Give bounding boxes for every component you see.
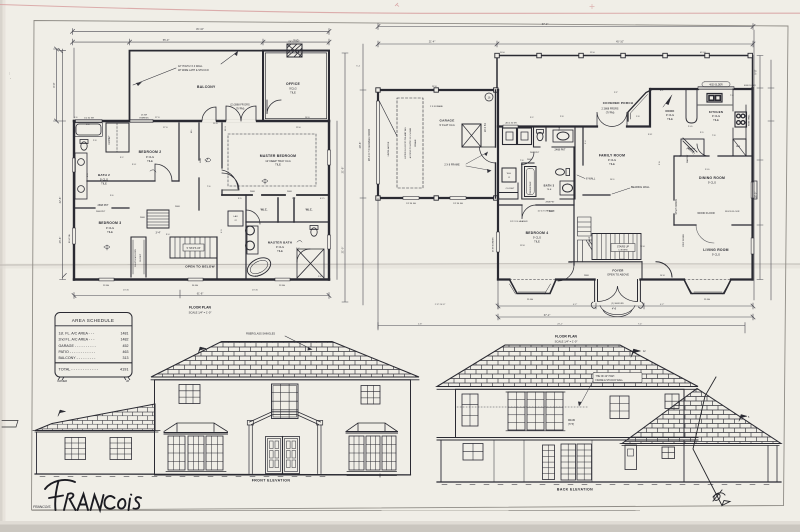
svg-text:LIVING ROOM: LIVING ROOM (703, 248, 729, 252)
svg-text:23 SH: 23 SH (103, 285, 109, 287)
svg-text:3'-0°: 3'-0° (132, 164, 136, 166)
svg-text:6' WALL: 6' WALL (586, 178, 596, 181)
svg-text:45'-10": 45'-10" (196, 27, 204, 31)
svg-text:25 SH: 25 SH (704, 299, 711, 301)
svg-text:(TYPM): (TYPM) (236, 108, 245, 111)
svg-text:8'-1": 8'-1" (660, 90, 664, 92)
svg-text:COVERED PORCH: COVERED PORCH (603, 101, 634, 105)
svg-text:2468 PKT: 2468 PKT (554, 149, 566, 152)
svg-text:SCALE 1/4" = 1'-0": SCALE 1/4" = 1'-0" (555, 339, 578, 343)
svg-text:PANTRY: PANTRY (686, 154, 689, 163)
svg-text:25 SH: 25 SH (527, 299, 534, 301)
svg-text:55'-0": 55'-0" (163, 38, 170, 42)
svg-text:21'-8": 21'-8" (341, 167, 345, 174)
svg-text:2'-8": 2'-8" (418, 323, 423, 325)
svg-text:7'-4": 7'-4" (638, 323, 643, 325)
svg-text:KITCHEN: KITCHEN (709, 110, 723, 114)
svg-text:BEDROOM 3: BEDROOM 3 (99, 221, 122, 225)
svg-text:TILE: TILE (559, 126, 561, 131)
svg-text:22 X 54: 22 X 54 (484, 123, 487, 132)
svg-text:2 X 8 FRAME: 2 X 8 FRAME (444, 164, 460, 167)
svg-text:452: 452 (123, 344, 129, 348)
svg-text:45'-10": 45'-10" (616, 40, 624, 44)
svg-text:(TYP): (TYP) (568, 424, 574, 426)
svg-text:8'-8": 8'-8" (52, 82, 56, 87)
svg-text:1/2 34 SH: 1/2 34 SH (453, 203, 463, 205)
svg-text:1/2 32 SH: 1/2 32 SH (540, 126, 550, 128)
svg-text:FRONT ELEVATION: FRONT ELEVATION (252, 479, 291, 483)
svg-text:WOOD FLOOR: WOOD FLOOR (725, 211, 740, 213)
svg-text:TILE: TILE (667, 117, 673, 121)
svg-text:23'-9n: 23'-9n (123, 290, 130, 292)
svg-text:TILE: TILE (534, 239, 540, 243)
svg-text:FRAME & STUCCO WALL: FRAME & STUCCO WALL (596, 379, 624, 382)
svg-text:1482: 1482 (121, 338, 129, 342)
svg-text:TILE: TILE (609, 162, 615, 166)
svg-text:9' CLG: 9' CLG (533, 236, 541, 240)
svg-text:12' DEEP TRAY CLG: 12' DEEP TRAY CLG (265, 159, 290, 163)
svg-text:25 SH EGRESS: 25 SH EGRESS (493, 237, 495, 252)
svg-text:MASTER BATH: MASTER BATH (268, 241, 292, 245)
svg-text:BACK ELEVATION: BACK ELEVATION (557, 488, 593, 492)
svg-text:4030 SLDER: 4030 SLDER (709, 85, 723, 87)
svg-text:4'-6: 4'-6 (612, 307, 617, 311)
svg-text:186 BY-PASS DRS: 186 BY-PASS DRS (134, 249, 137, 267)
svg-text:4030 S OER: 4030 S OER (744, 85, 756, 87)
svg-text:LINTEL ABOVE: LINTEL ABOVE (387, 141, 390, 156)
svg-text:1st. FL. A/C AREA - - -: 1st. FL. A/C AREA - - - (59, 331, 96, 335)
svg-text:FOYER: FOYER (612, 269, 624, 273)
svg-text:(2) 3068 DRS: (2) 3068 DRS (611, 303, 624, 305)
svg-text:M 1/2 SH: M 1/2 SH (69, 233, 71, 243)
svg-text:2 2868 FRDRS: 2 2868 FRDRS (602, 108, 619, 111)
svg-text:2'-8" 20'-8": 2'-8" 20'-8" (435, 304, 446, 306)
svg-text:EGRESS: EGRESS (139, 117, 149, 119)
svg-text:STEP DOWN: STEP DOWN (683, 234, 685, 247)
svg-text:A 1/2 32 SH: A 1/2 32 SH (505, 122, 517, 125)
svg-text:WOOD FLOOR: WOOD FLOOR (697, 212, 715, 215)
svg-text:42'-8": 42'-8" (58, 197, 62, 204)
svg-text:OPEN TO ABOVE: OPEN TO ABOVE (607, 273, 629, 277)
svg-text:TOTAL - - - - - - - - - - - -: TOTAL - - - - - - - - - - - - (59, 367, 99, 371)
svg-text:REF: REF (736, 146, 741, 148)
svg-text:CLOSET: CLOSET (506, 188, 515, 190)
svg-text:TUB/SHOWER: TUB/SHOWER (530, 181, 532, 194)
svg-text:W.I.C.: W.I.C. (306, 209, 313, 212)
svg-text:BALCONY - - - - - - - - -: BALCONY - - - - - - - - - (59, 356, 97, 360)
svg-text:BALCONY: BALCONY (197, 85, 216, 89)
svg-text:28'-8": 28'-8" (358, 142, 362, 149)
svg-text:TILE: TILE (713, 118, 719, 122)
svg-text:W.H.: W.H. (507, 173, 512, 175)
svg-text:463: 463 (123, 350, 129, 354)
svg-text:CLOSET: CLOSET (109, 135, 111, 145)
svg-text:GARAGE: GARAGE (439, 119, 454, 123)
svg-text:9' CLG: 9' CLG (712, 253, 720, 257)
svg-text:21'-0": 21'-0" (341, 247, 345, 254)
svg-text:9' CLG: 9' CLG (666, 113, 674, 117)
svg-text:TILE: TILE (107, 230, 113, 234)
svg-text:FLOOR PLAN: FLOOR PLAN (555, 335, 578, 339)
svg-text:61'-8": 61'-8" (197, 291, 204, 295)
svg-text:9'CLG: 9'CLG (289, 87, 297, 91)
svg-text:1/2 32 SH: 1/2 32 SH (84, 117, 94, 119)
svg-text:2868 PKT: 2868 PKT (546, 202, 556, 204)
svg-text:FLOOR PLAN: FLOOR PLAN (189, 306, 212, 310)
svg-text:67'-2": 67'-2" (542, 22, 549, 26)
svg-text:9' CLG: 9' CLG (712, 114, 720, 118)
svg-text:LIFTED 9X9 ROTO TIE AND TAG: LIFTED 9X9 ROTO TIE AND TAG (404, 127, 407, 159)
svg-text:1/2 34 SH: 1/2 34 SH (406, 203, 416, 205)
svg-text:PATIO - - - - - - - - - - - -: PATIO - - - - - - - - - - - - (59, 350, 96, 354)
svg-text:TILE: TILE (101, 182, 107, 186)
svg-text:42" HIGH 2 X 4 WALL: 42" HIGH 2 X 4 WALL (178, 65, 203, 68)
svg-text:2'-1": 2'-1" (614, 92, 618, 94)
svg-text:FRAME: FRAME (414, 139, 417, 147)
svg-text:OFFICE: OFFICE (286, 82, 300, 86)
svg-text:GARAGE - - - - - - - - - -: GARAGE - - - - - - - - - - (59, 344, 97, 348)
svg-text:1481: 1481 (121, 331, 129, 335)
svg-text:⋮: ⋮ (8, 71, 11, 75)
svg-text:STAIRS UP: STAIRS UP (617, 245, 629, 248)
svg-text:NOOK: NOOK (665, 109, 674, 113)
svg-text:SCALE 1/4" = 1'-0": SCALE 1/4" = 1'-0" (189, 310, 212, 314)
svg-text:FIBERGLASS SHINGLES: FIBERGLASS SHINGLES (246, 333, 275, 336)
svg-text:9'-8": 9'-8" (754, 69, 758, 74)
svg-text:2 X 8 FRAME: 2 X 8 FRAME (430, 105, 443, 108)
svg-text:4'-2": 4'-2" (660, 304, 665, 306)
svg-text:67'-2": 67'-2" (544, 313, 551, 317)
svg-text:4191: 4191 (120, 367, 128, 371)
svg-text:STEP DOWN: STEP DOWN (675, 199, 678, 214)
svg-text:W.I.C.: W.I.C. (261, 209, 268, 212)
svg-text:9' CLG: 9' CLG (106, 226, 114, 230)
svg-text:TILE: TILE (147, 159, 153, 163)
svg-text:KNEE WALL: KNEE WALL (748, 113, 751, 126)
svg-text:STOR UP: STOR UP (589, 236, 591, 246)
svg-text:14 R/SERS: 14 R/SERS (618, 250, 628, 252)
svg-text:3'-4": 3'-4" (156, 232, 161, 235)
svg-text:(TYPM): (TYPM) (606, 111, 615, 114)
svg-text:25 SH: 25 SH (141, 115, 147, 117)
svg-text:3'-8°: 3'-8° (648, 134, 652, 136)
svg-text:9' CLG: 9' CLG (146, 155, 154, 159)
svg-text:THE OF 42" HIGH: THE OF 42" HIGH (596, 376, 615, 378)
svg-text:9' CLG: 9' CLG (276, 245, 284, 249)
svg-text:ACCESS TO ATTIC 22 X 54 MIN: ACCESS TO ATTIC 22 X 54 MIN (409, 127, 412, 158)
svg-text:MASTER BEDROOM: MASTER BEDROOM (260, 154, 296, 158)
svg-text:9' FLAT CLG: 9' FLAT CLG (439, 123, 454, 127)
svg-text:OPEN TO BELOW: OPEN TO BELOW (185, 265, 215, 269)
svg-text:16'-0": 16'-0" (754, 192, 758, 199)
svg-text:9'-2": 9'-2" (293, 38, 298, 42)
svg-text:2468 PKT: 2468 PKT (530, 152, 540, 154)
svg-text:5 7/8 R'S UP: 5 7/8 R'S UP (187, 247, 201, 250)
svg-text:TILE: TILE (547, 189, 552, 191)
svg-text:(2) 2868 FR DRS: (2) 2868 FR DRS (230, 104, 250, 107)
svg-text:DRAIN: DRAIN (568, 419, 575, 422)
svg-text:AREA SCHEDULE: AREA SCHEDULE (72, 318, 114, 323)
svg-text:36 SH: 36 SH (192, 285, 198, 287)
svg-text:TILE: TILE (277, 249, 283, 253)
svg-text:45'-10: 45'-10 (700, 52, 707, 54)
svg-text:23'-1": 23'-1" (557, 323, 563, 325)
svg-text:TILE: TILE (275, 163, 281, 167)
svg-text:4'-2": 4'-2" (573, 304, 578, 306)
svg-text:23 SH: 23 SH (279, 285, 285, 287)
svg-text:BEDROOM 2: BEDROOM 2 (139, 150, 162, 154)
svg-text:DINING ROOM: DINING ROOM (699, 176, 725, 180)
svg-text:2668 PKT: 2668 PKT (97, 204, 109, 207)
svg-text:BATH 3: BATH 3 (544, 184, 555, 188)
svg-text:OWNER: OWNER (57, 379, 67, 383)
svg-text:9' CLG: 9' CLG (708, 181, 716, 185)
svg-text:16'-0 X 7'-0 GARAGE DOOR: 16'-0 X 7'-0 GARAGE DOOR (368, 129, 371, 161)
svg-text:9' CLG: 9' CLG (100, 178, 108, 182)
svg-text:25'-8": 25'-8" (58, 237, 62, 244)
svg-text:2nd FL. A/C AREA - - -: 2nd FL. A/C AREA - - - (59, 338, 96, 342)
svg-text:1/2 2 X 6 HEADER: 1/2 2 X 6 HEADER (510, 220, 528, 223)
svg-text:BEDROOM 4: BEDROOM 4 (526, 231, 549, 235)
svg-text:BEARING WALL: BEARING WALL (631, 186, 650, 189)
svg-text:FAMILY ROOM: FAMILY ROOM (599, 154, 625, 158)
svg-text:23'-9n: 23'-9n (252, 290, 259, 292)
svg-text:W/ WIRE LATH & STUCCO: W/ WIRE LATH & STUCCO (178, 69, 209, 72)
svg-text:CLOSET: CLOSET (140, 253, 142, 262)
svg-text:313: 313 (123, 356, 129, 360)
svg-text:FRANCOIS: FRANCOIS (33, 505, 51, 509)
svg-text:2668 PKT: 2668 PKT (96, 211, 106, 213)
svg-text:21'-4": 21'-4" (429, 40, 436, 44)
svg-text:9' CLG: 9' CLG (608, 158, 616, 162)
svg-text:BATH 2: BATH 2 (98, 173, 110, 177)
svg-text:TILE: TILE (290, 91, 296, 95)
svg-text:LAU: LAU (233, 215, 238, 218)
